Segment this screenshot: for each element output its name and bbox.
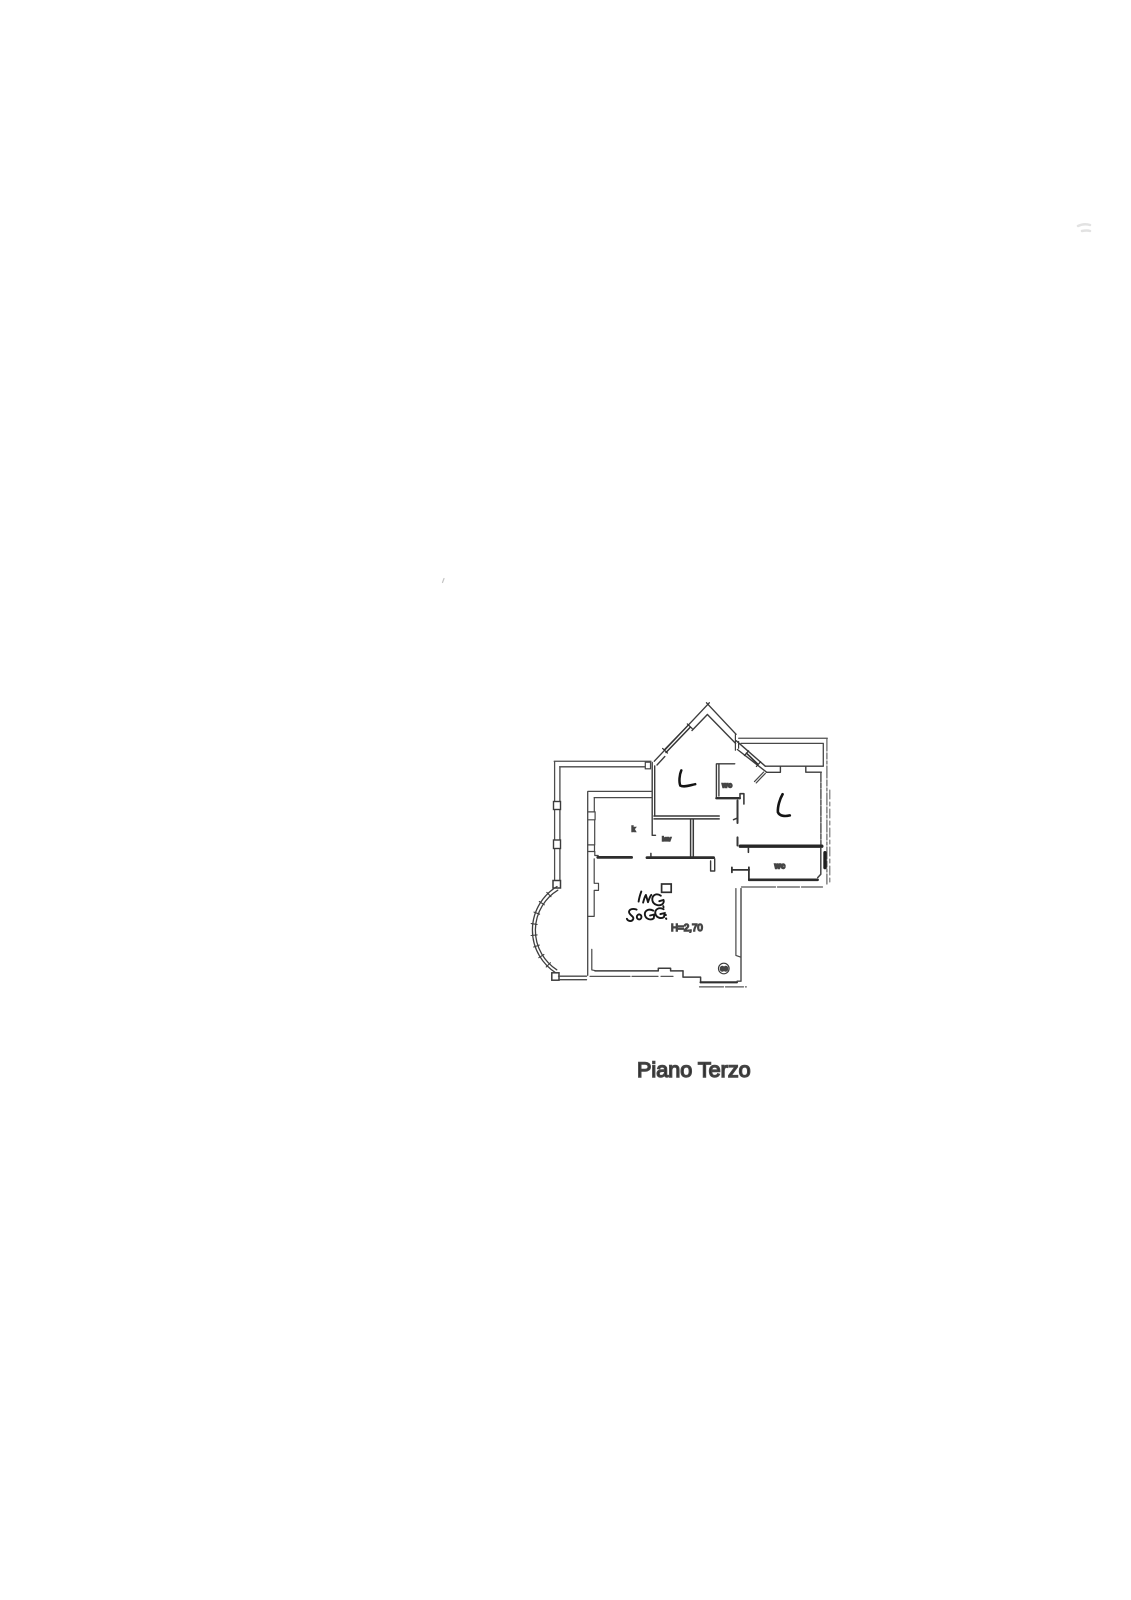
svg-text:H=2,70: H=2,70 bbox=[671, 923, 703, 934]
svg-text:wc: wc bbox=[721, 781, 732, 790]
svg-text:Piano Terzo: Piano Terzo bbox=[637, 1057, 751, 1082]
svg-text:lav: lav bbox=[662, 836, 671, 843]
svg-text:69: 69 bbox=[720, 966, 728, 973]
svg-text:k: k bbox=[632, 825, 636, 834]
svg-text:wc: wc bbox=[774, 862, 786, 871]
